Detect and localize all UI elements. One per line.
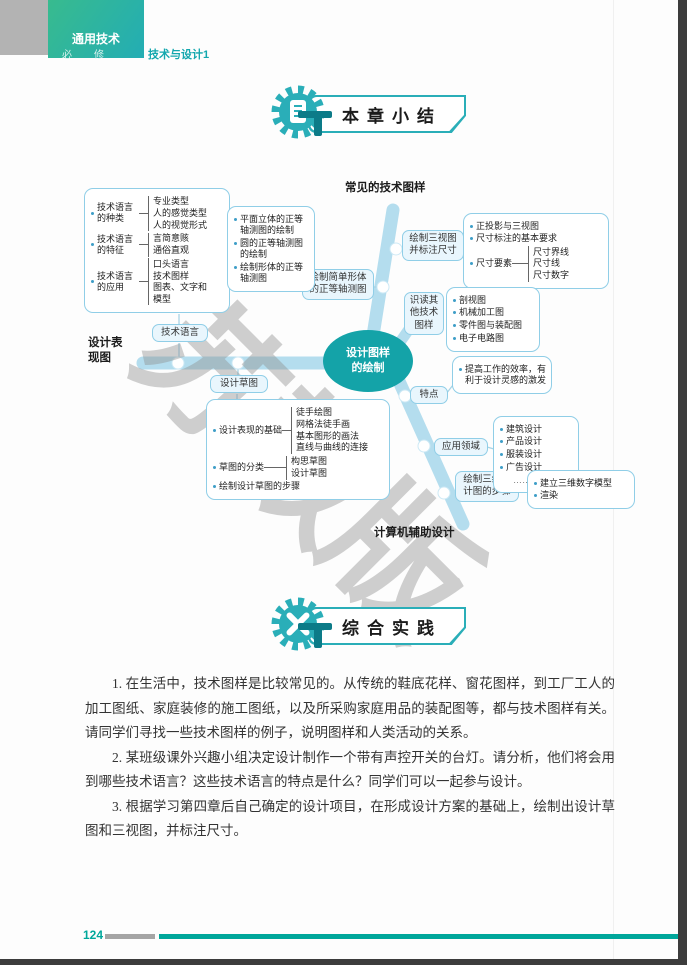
- node-application-fields: 应用领域: [434, 438, 488, 456]
- node-features: 特点: [410, 386, 448, 404]
- practice-badge: 综合实践: [270, 596, 470, 658]
- question-1: 1. 在生活中，技术图样是比较常见的。从传统的鞋底花样、窗花图样，到工厂工人的加…: [85, 672, 615, 746]
- practice-title: 综合实践: [332, 614, 442, 639]
- bracket-dash: [139, 213, 148, 214]
- practice-questions: 1. 在生活中，技术图样是比较常见的。从传统的鞋底花样、窗花图样，到工厂工人的加…: [85, 672, 615, 844]
- leaf-box-other-drawings: 剖视图 机械加工图 零件图与装配图 电子电路图: [446, 287, 540, 352]
- book-title: 技术与设计1: [148, 46, 209, 62]
- page-bottom-edge: [0, 959, 687, 965]
- course-level: 必 修: [62, 46, 110, 61]
- header-gray-block: [0, 0, 48, 55]
- label-common-drawings: 常见的技术图样: [345, 181, 426, 196]
- gear-icon: [270, 596, 336, 658]
- footer-gray-bar: [105, 934, 155, 939]
- footer-teal-bar: [159, 934, 687, 939]
- leaf-box-axonometric: 平面立体的正等轴测图的绘制 圆的正等轴测图的绘制 绘制形体的正等轴测图: [227, 206, 315, 292]
- leaf-box-three-views: 正投影与三视图 尺寸标注的基本要求 尺寸要素 尺寸界线 尺寸线 尺寸数字: [463, 213, 609, 289]
- node-tech-language: 技术语言: [152, 324, 208, 342]
- page-number: 124: [83, 928, 103, 942]
- label-design-presentation: 设计表现图: [88, 336, 130, 366]
- page-right-edge: [678, 0, 687, 965]
- leaf-box-tech-language: 技术语言的种类 专业类型 人的感觉类型 人的视觉形式 技术语言的特征 言简意赅 …: [84, 188, 230, 313]
- node-design-sketch: 设计草图: [210, 375, 268, 393]
- leaf-box-sketch: 设计表现的基础 徒手绘图 网格法徒手画 基本图形的画法 直线与曲线的连接 草图的…: [206, 399, 390, 500]
- chapter-summary-badge: 本章小结: [270, 84, 470, 146]
- leaf-box-3d-steps: 建立三维数字模型 渲染: [527, 470, 635, 509]
- gear-icon: [270, 84, 336, 146]
- node-three-views: 绘制三视图并标注尺寸: [402, 230, 464, 261]
- leaf-box-features: 提高工作的效率，有利于设计灵感的激发: [452, 356, 552, 394]
- question-3: 3. 根据学习第四章后自己确定的设计项目，在形成设计方案的基础上，绘制出设计草图…: [85, 795, 615, 844]
- chapter-summary-title: 本章小结: [332, 102, 442, 127]
- series-title: 通用技术: [72, 30, 120, 47]
- bullet: [91, 212, 94, 215]
- textbook-page: 通用技术 必 修 技术与设计1 本章小结: [0, 0, 687, 965]
- node-read-other-drawings: 识读其他技术图样: [404, 292, 444, 335]
- central-topic: 设计图样 的绘制: [323, 330, 413, 392]
- label-cad: 计算机辅助设计: [374, 526, 455, 541]
- question-2: 2. 某班级课外兴趣小组决定设计制作一个带有声控开关的台灯。请分析，他们将会用到…: [85, 746, 615, 795]
